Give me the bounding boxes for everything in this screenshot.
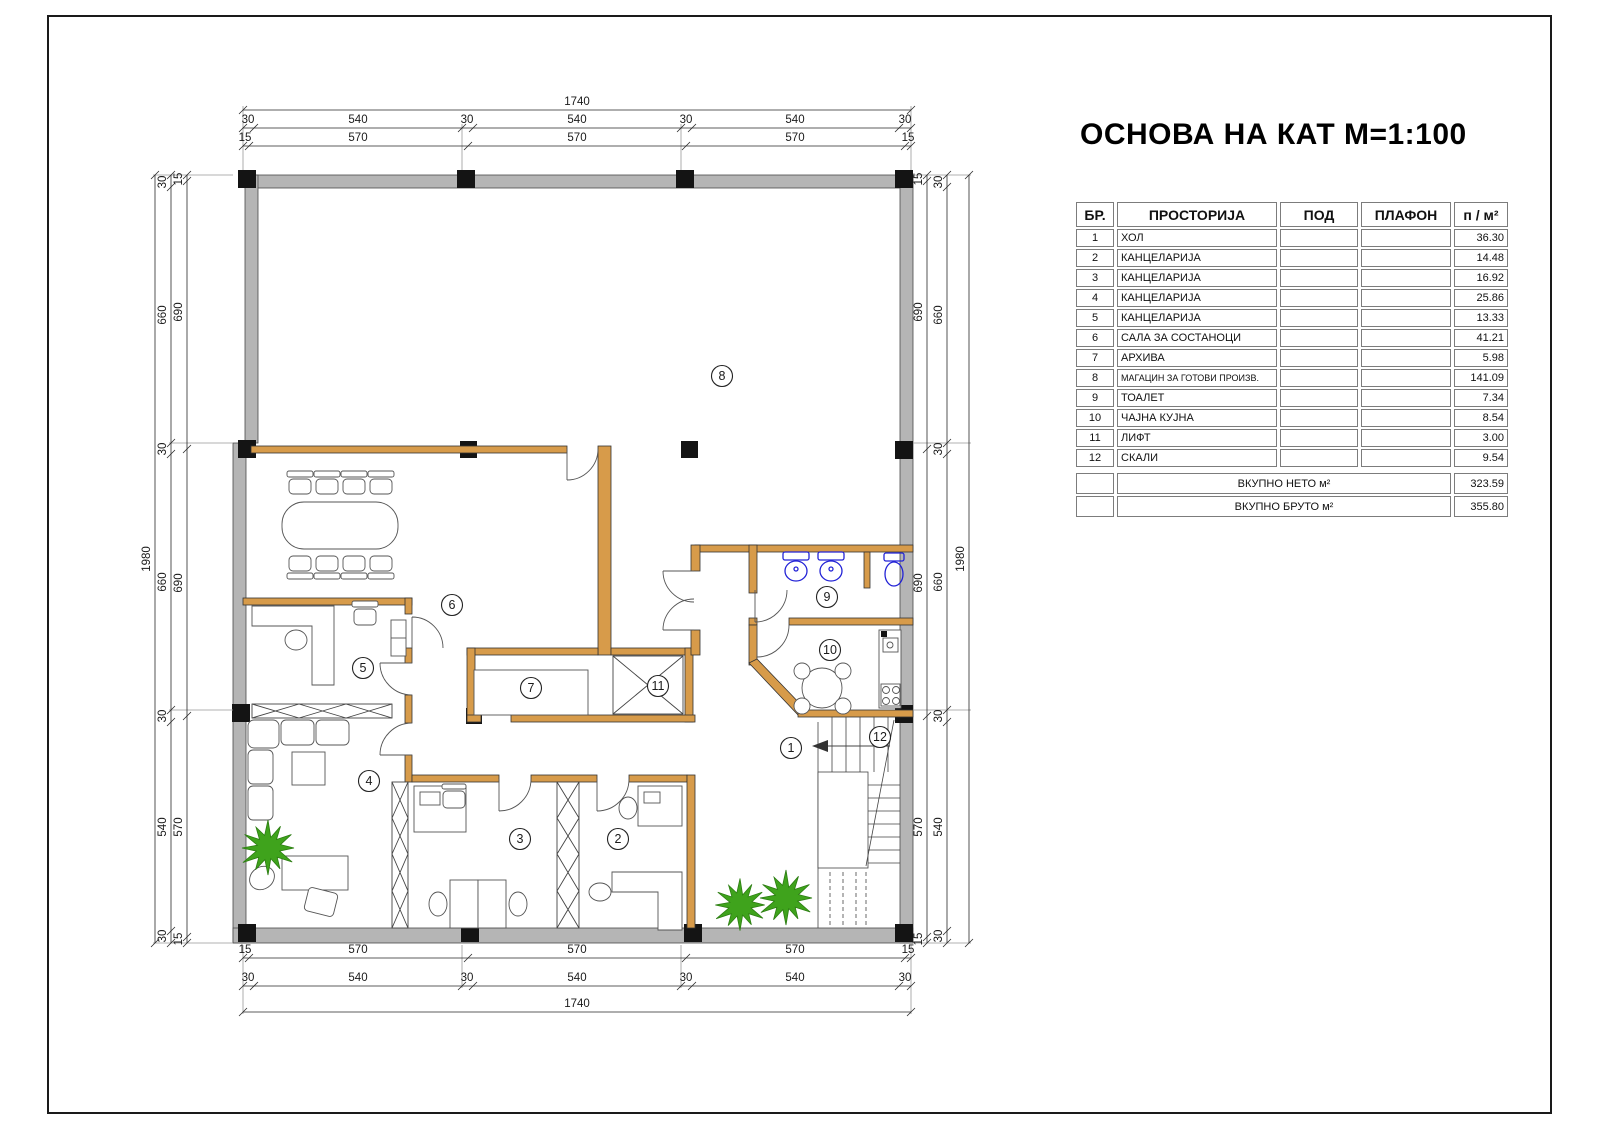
svg-text:1740: 1740 xyxy=(564,96,590,108)
svg-text:570: 570 xyxy=(913,817,925,836)
svg-text:15: 15 xyxy=(913,173,925,186)
svg-text:660: 660 xyxy=(933,572,945,591)
svg-text:30: 30 xyxy=(157,176,169,189)
svg-text:540: 540 xyxy=(785,114,804,126)
svg-text:540: 540 xyxy=(785,972,804,984)
dimensions-bottom: 15 570 570 570 15 30 540 30 540 30 540 3… xyxy=(239,944,915,1016)
sink xyxy=(783,552,809,560)
conference-table-and-chairs xyxy=(282,471,398,579)
svg-text:2: 2 xyxy=(615,832,622,846)
svg-text:4: 4 xyxy=(366,774,373,788)
svg-text:690: 690 xyxy=(173,302,185,321)
svg-text:570: 570 xyxy=(567,132,586,144)
svg-text:15: 15 xyxy=(239,132,252,144)
svg-text:660: 660 xyxy=(157,305,169,324)
svg-text:570: 570 xyxy=(567,944,586,956)
svg-text:6: 6 xyxy=(449,598,456,612)
svg-text:540: 540 xyxy=(567,114,586,126)
svg-text:30: 30 xyxy=(680,972,693,984)
room-label: 3 xyxy=(510,829,531,850)
svg-text:570: 570 xyxy=(348,132,367,144)
floor-plan: 1 2 3 4 5 6 7 8 9 10 11 12 1740 30 540 3… xyxy=(0,0,1600,1131)
svg-text:540: 540 xyxy=(157,817,169,836)
svg-text:540: 540 xyxy=(567,972,586,984)
svg-text:570: 570 xyxy=(173,817,185,836)
svg-text:30: 30 xyxy=(899,114,912,126)
svg-text:30: 30 xyxy=(680,114,693,126)
kitchen-fixtures xyxy=(794,630,901,714)
svg-text:3: 3 xyxy=(517,832,524,846)
svg-text:30: 30 xyxy=(933,930,945,943)
svg-text:30: 30 xyxy=(933,710,945,723)
svg-text:30: 30 xyxy=(157,710,169,723)
svg-text:5: 5 xyxy=(360,661,367,675)
staircase xyxy=(812,717,900,928)
svg-text:540: 540 xyxy=(933,817,945,836)
svg-text:1740: 1740 xyxy=(564,998,590,1010)
svg-text:9: 9 xyxy=(824,590,831,604)
room-label: 10 xyxy=(820,640,841,661)
svg-text:570: 570 xyxy=(785,944,804,956)
svg-text:570: 570 xyxy=(785,132,804,144)
dimensions-left: 1980 30 660 30 660 30 540 30 15 690 690 … xyxy=(141,171,233,947)
room-label: 8 xyxy=(712,366,733,387)
svg-text:15: 15 xyxy=(239,944,252,956)
svg-text:30: 30 xyxy=(242,972,255,984)
svg-text:1: 1 xyxy=(788,741,795,755)
sink xyxy=(818,552,844,560)
svg-text:30: 30 xyxy=(461,114,474,126)
svg-text:15: 15 xyxy=(913,933,925,946)
office4-furniture xyxy=(245,720,349,917)
svg-text:690: 690 xyxy=(913,573,925,592)
stair-direction-arrow xyxy=(812,740,828,752)
svg-text:30: 30 xyxy=(242,114,255,126)
svg-text:690: 690 xyxy=(173,573,185,592)
svg-text:11: 11 xyxy=(652,679,665,693)
svg-text:10: 10 xyxy=(823,643,837,657)
toilet-fixtures xyxy=(783,552,904,586)
svg-text:15: 15 xyxy=(173,173,185,186)
drawing-sheet: ОСНОВА НА КАТ М=1:100 БР. ПРОСТОРИЈА ПОД… xyxy=(0,0,1600,1131)
svg-text:570: 570 xyxy=(348,944,367,956)
svg-text:30: 30 xyxy=(899,972,912,984)
svg-text:1980: 1980 xyxy=(955,546,967,572)
svg-text:540: 540 xyxy=(348,114,367,126)
svg-text:30: 30 xyxy=(461,972,474,984)
svg-text:7: 7 xyxy=(528,681,535,695)
svg-text:30: 30 xyxy=(933,176,945,189)
svg-text:30: 30 xyxy=(933,443,945,456)
svg-text:540: 540 xyxy=(348,972,367,984)
room-label: 12 xyxy=(870,727,891,748)
svg-text:30: 30 xyxy=(157,930,169,943)
svg-text:15: 15 xyxy=(902,132,915,144)
room-label: 4 xyxy=(359,771,380,792)
room-label: 1 xyxy=(781,738,802,759)
room-label: 7 xyxy=(521,678,542,699)
svg-text:690: 690 xyxy=(913,302,925,321)
room-label: 11 xyxy=(648,676,669,697)
svg-text:1980: 1980 xyxy=(141,546,153,572)
svg-text:30: 30 xyxy=(157,443,169,456)
svg-text:660: 660 xyxy=(933,305,945,324)
room-label: 9 xyxy=(817,587,838,608)
svg-text:15: 15 xyxy=(173,933,185,946)
svg-text:12: 12 xyxy=(873,730,887,744)
room-label: 2 xyxy=(608,829,629,850)
svg-text:660: 660 xyxy=(157,572,169,591)
dimensions-right: 15 690 690 570 15 30 660 30 660 30 540 3… xyxy=(913,171,973,947)
dimensions-top: 1740 30 540 30 540 30 540 30 15 570 570 … xyxy=(239,96,915,170)
svg-text:8: 8 xyxy=(719,369,726,383)
office3-furniture xyxy=(414,784,527,928)
door-swings xyxy=(380,449,789,811)
office2-furniture xyxy=(589,786,682,930)
office5-furniture xyxy=(252,601,406,685)
room-label: 5 xyxy=(353,658,374,679)
room-label: 6 xyxy=(442,595,463,616)
